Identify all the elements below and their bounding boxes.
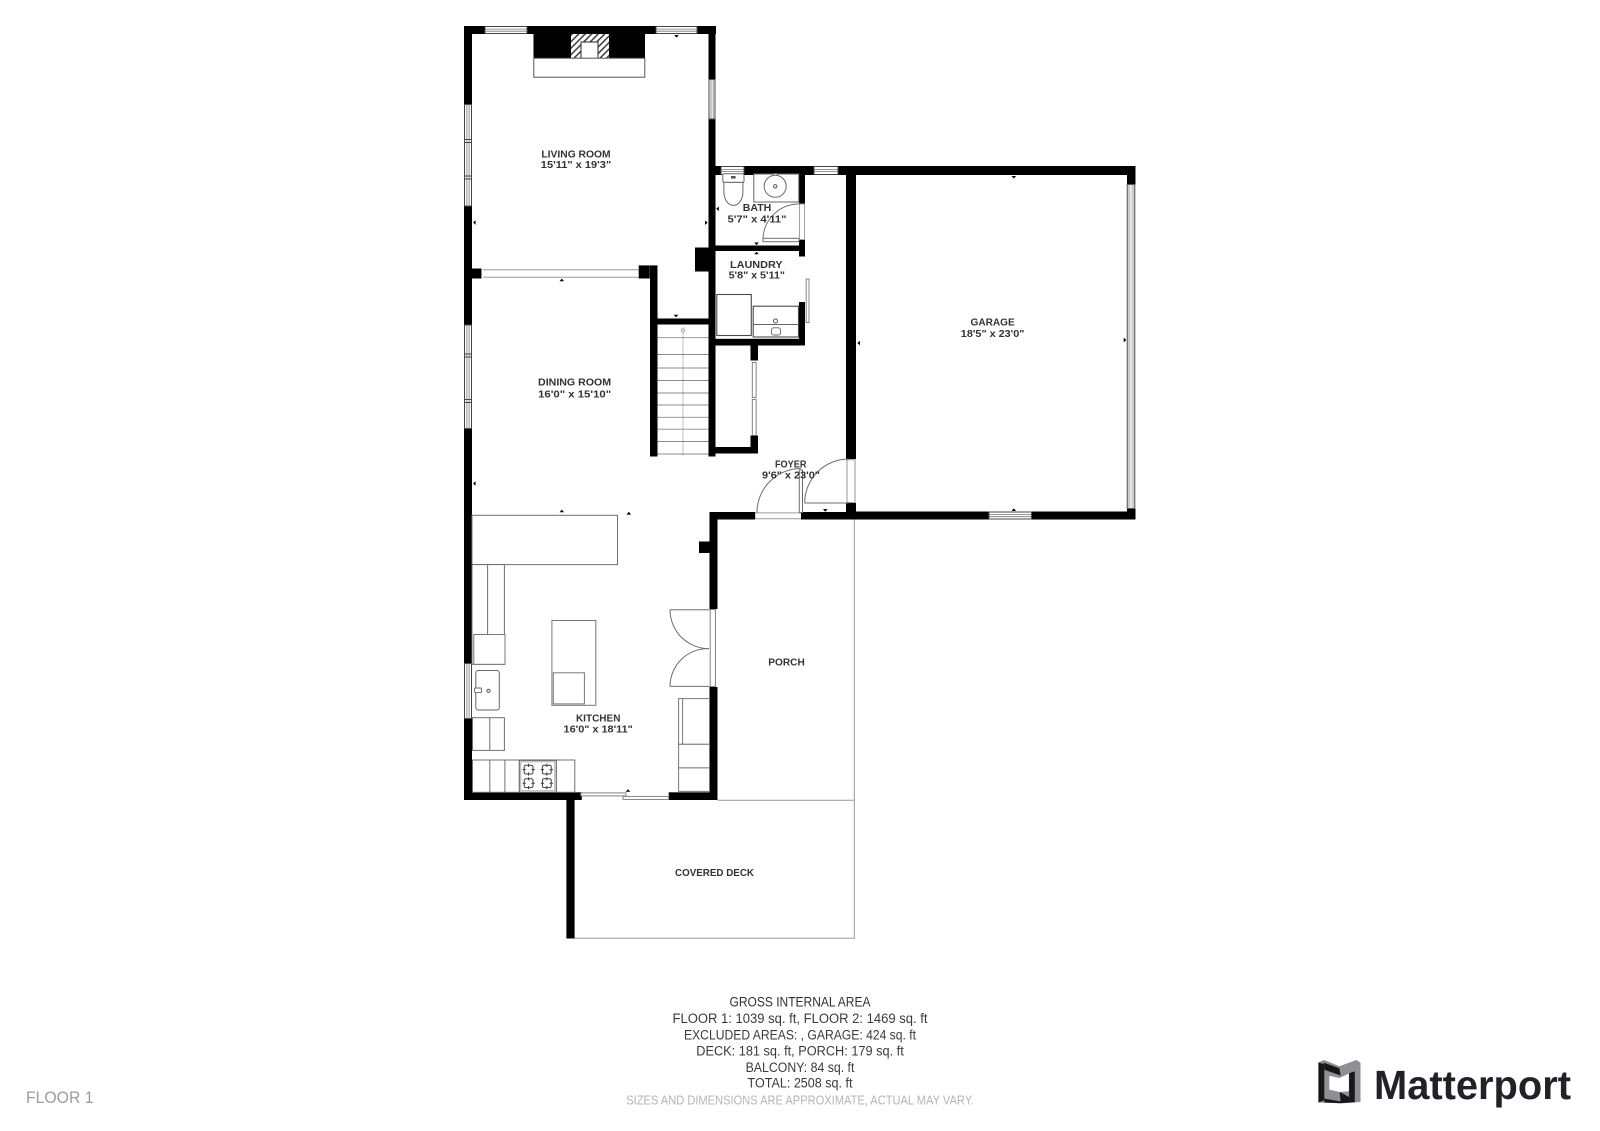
svg-text:16'0" x 18'11": 16'0" x 18'11" xyxy=(564,725,634,736)
svg-text:KITCHEN: KITCHEN xyxy=(576,713,621,724)
svg-text:EXCLUDED AREAS: , GARAGE: 424: EXCLUDED AREAS: , GARAGE: 424 sq. ft xyxy=(684,1028,916,1043)
svg-text:9'6" x 23'0": 9'6" x 23'0" xyxy=(762,470,820,481)
svg-text:FOYER: FOYER xyxy=(775,459,807,470)
svg-text:COVERED DECK: COVERED DECK xyxy=(675,868,755,879)
svg-text:DECK: 181 sq. ft, PORCH: 179 s: DECK: 181 sq. ft, PORCH: 179 sq. ft xyxy=(696,1043,904,1058)
svg-text:5'8" x 5'11": 5'8" x 5'11" xyxy=(729,270,786,281)
svg-text:GARAGE: GARAGE xyxy=(971,318,1016,329)
svg-text:DINING ROOM: DINING ROOM xyxy=(538,378,611,389)
svg-text:15'11" x 19'3": 15'11" x 19'3" xyxy=(541,160,612,171)
svg-text:PORCH: PORCH xyxy=(768,658,805,669)
svg-text:BALCONY: 84 sq. ft: BALCONY: 84 sq. ft xyxy=(746,1060,855,1075)
svg-text:16'0" x 15'10": 16'0" x 15'10" xyxy=(538,390,611,401)
svg-text:FLOOR 1: 1039 sq. ft, FLOOR 2:: FLOOR 1: 1039 sq. ft, FLOOR 2: 1469 sq. … xyxy=(673,1011,928,1026)
svg-text:Matterport: Matterport xyxy=(1374,1062,1571,1108)
svg-text:LIVING ROOM: LIVING ROOM xyxy=(541,150,610,161)
svg-text:SIZES AND DIMENSIONS ARE APPRO: SIZES AND DIMENSIONS ARE APPROXIMATE, AC… xyxy=(626,1092,974,1107)
svg-text:BATH: BATH xyxy=(743,203,772,214)
svg-text:TOTAL: 2508 sq. ft: TOTAL: 2508 sq. ft xyxy=(748,1075,853,1090)
svg-text:18'5" x 23'0": 18'5" x 23'0" xyxy=(961,329,1025,340)
svg-text:FLOOR 1: FLOOR 1 xyxy=(26,1089,94,1107)
svg-text:GROSS INTERNAL AREA: GROSS INTERNAL AREA xyxy=(730,995,871,1010)
svg-text:5'7" x 4'11": 5'7" x 4'11" xyxy=(728,215,787,226)
